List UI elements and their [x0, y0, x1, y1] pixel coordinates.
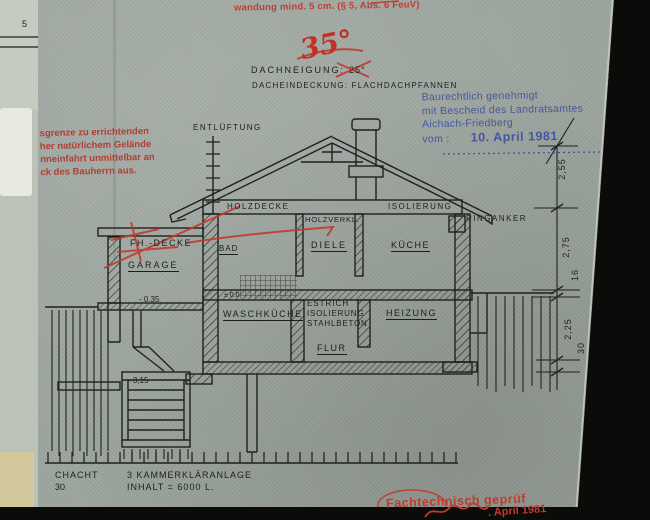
terrain-hatch-right	[478, 296, 550, 392]
label-waschkueche: WASCHKÜCHE	[223, 310, 303, 321]
approval-stamp-line4: vom : 10. April 1981	[422, 129, 584, 146]
margin-number: 5	[22, 20, 27, 29]
label-isolierung-roof: ISOLIERUNG	[388, 203, 452, 211]
roof-pitch-label: DACHNEIGUNG:	[251, 66, 345, 75]
label-holzdecke: HOLZDECKE	[227, 203, 289, 211]
scan-background	[0, 0, 650, 520]
scale-ruler-ticks	[48, 452, 456, 463]
label-isolierung-floor: ISOLIERUNG	[307, 310, 364, 318]
approval-stamp: Baurechtlich genehmigt mit Bescheid des …	[422, 89, 584, 147]
approval-stamp-line2: mit Bescheid des Landratsamtes	[422, 102, 584, 118]
terrain-hatch-left	[52, 310, 108, 456]
dimension-ceiling: 16	[570, 255, 580, 295]
roof-pitch-old-value: 25°	[349, 66, 366, 75]
approval-stamp-date: 10. April 1981	[471, 129, 558, 145]
label-entlueftung: ENTLÜFTUNG	[193, 124, 262, 132]
underpage-lines	[0, 37, 38, 47]
scanned-building-plan: 5 wandung mind. 5 cm. (§ 5, Abs. 6 FeuV)…	[0, 0, 650, 520]
level-ground-floor: ± 0.0	[224, 292, 240, 299]
footer-shaft-label: CHACHT	[55, 471, 99, 480]
dimension-slab: 30	[576, 328, 586, 368]
footer-tank-label: 3 KAMMERKLÄRANLAGE	[127, 471, 252, 480]
level-garage-floor: - 0.35	[139, 296, 159, 304]
label-kueche: KÜCHE	[391, 241, 430, 252]
roof-covering-label: DACHEINDECKUNG: FLACHDACHPFANNEN	[252, 82, 458, 90]
stamp-dotted-line	[443, 152, 600, 154]
level-tank-bottom: - 3,15	[128, 377, 148, 385]
boundary-note-line3: nneinfahrt unmittelbar an	[40, 151, 155, 166]
label-holzverkl: HOLZVERKL.	[305, 216, 360, 224]
label-diele: DIELE	[311, 241, 347, 252]
footer-tank-capacity: INHALT = 6000 L.	[127, 483, 214, 492]
label-fh-decke: FH.-DECKE	[130, 239, 192, 248]
dimension-basement: 2,25	[563, 309, 573, 349]
label-bad: BAD	[219, 245, 238, 255]
label-estrich: ESTRICH	[307, 300, 349, 308]
boundary-note-stamp: sgrenze zu errichtenden her natürlichem …	[39, 125, 155, 179]
label-ringanker: RINGANKER	[466, 215, 527, 223]
footer-shaft-value: 30	[55, 483, 65, 492]
label-flur: FLUR	[317, 344, 347, 355]
label-stahlbeton: STAHLBETON	[307, 320, 368, 328]
section-drawing-linework	[0, 0, 650, 520]
dimension-roof: 2,55	[557, 149, 567, 189]
approval-stamp-vom: vom :	[422, 132, 449, 144]
boundary-note-line4: ck des Bauherrn aus.	[40, 164, 155, 179]
label-heizung: HEIZUNG	[386, 309, 437, 320]
label-garage: GARAGE	[128, 261, 179, 272]
